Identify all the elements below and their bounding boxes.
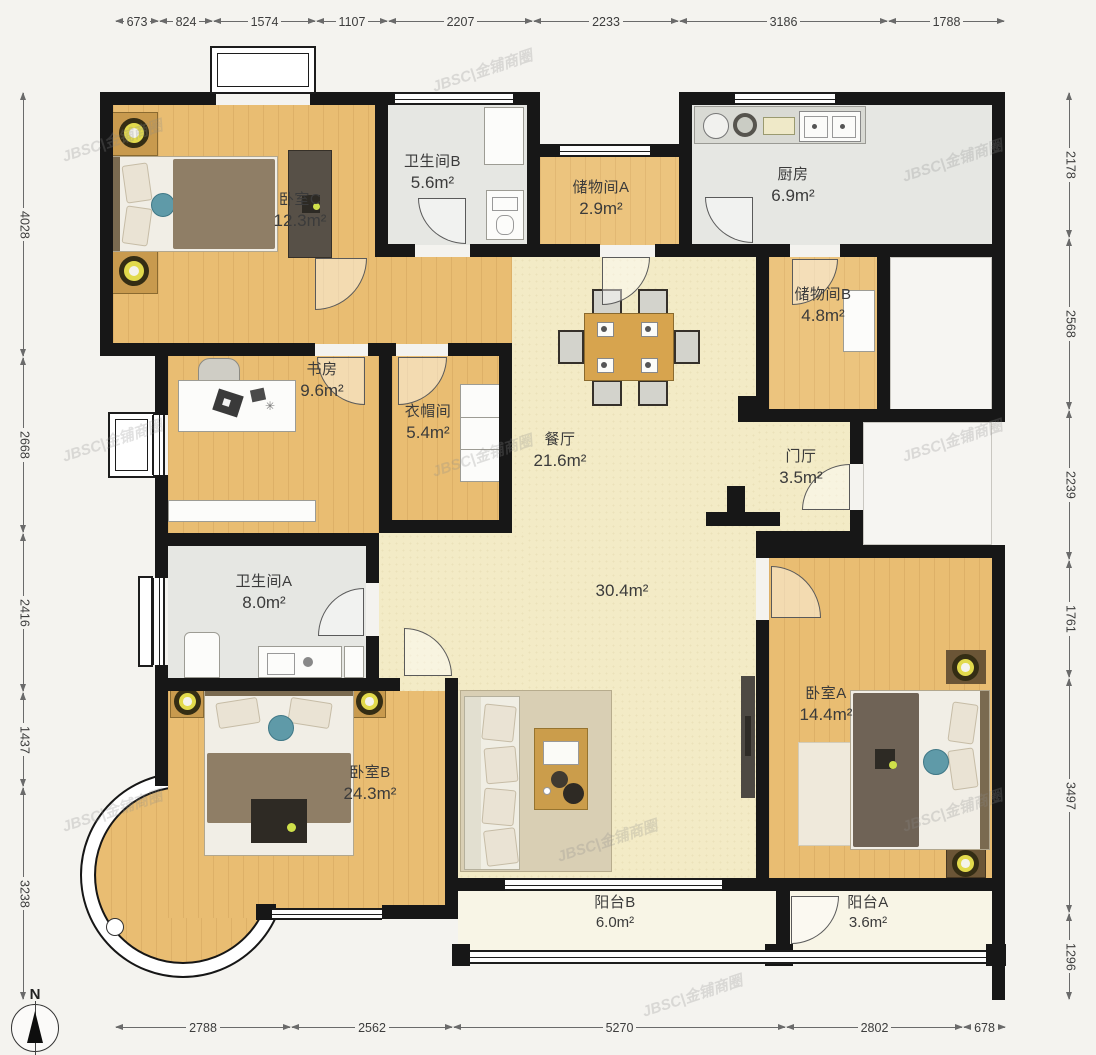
- dim-value: 2802: [858, 1022, 892, 1035]
- room-name: 衣帽间: [368, 402, 488, 422]
- wall: [992, 545, 1005, 1000]
- dim-right-segment: 2568: [1062, 238, 1078, 410]
- wall: [155, 678, 400, 691]
- lamp-icon: [119, 256, 149, 286]
- window: [152, 415, 165, 475]
- dim-value: 1296: [1064, 940, 1077, 974]
- lamp-icon: [119, 118, 149, 148]
- dim-right-segment: 2178: [1062, 92, 1078, 238]
- dim-right-segment: 2239: [1062, 410, 1078, 560]
- wall: [679, 92, 735, 105]
- dining-chair: [638, 289, 668, 315]
- room-area: 30.4m²: [560, 580, 684, 602]
- wall: [379, 520, 512, 533]
- room-name: 卫生间B: [370, 152, 495, 172]
- room-area: 24.3m²: [308, 783, 432, 805]
- room-label-balcony-a: 阳台A 3.6m²: [806, 893, 930, 932]
- dim-top-segment: 824: [159, 14, 213, 30]
- dim-left-segment: 2416: [16, 533, 32, 692]
- wall: [692, 244, 758, 257]
- floor-corridor: [379, 533, 527, 691]
- dim-value: 5270: [603, 1022, 637, 1035]
- wall: [756, 620, 769, 878]
- room-label-bath-a: 卫生间A 8.0m²: [202, 572, 326, 614]
- room-name: 阳台A: [806, 893, 930, 913]
- window: [560, 144, 650, 157]
- wall: [722, 878, 776, 891]
- dim-top-segment: 2207: [388, 14, 533, 30]
- dim-value: 1437: [18, 723, 31, 757]
- bay-window: [108, 412, 155, 478]
- bay-window: [138, 576, 153, 667]
- room-name: 阳台B: [553, 893, 677, 913]
- dim-value: 3497: [1064, 779, 1077, 813]
- room-name: 储物间A: [536, 178, 666, 198]
- coffee-table: [534, 728, 588, 810]
- dining-chair: [558, 330, 584, 364]
- dim-left-segment: 3238: [16, 787, 32, 1000]
- dim-value: 824: [173, 16, 200, 29]
- wall: [470, 244, 527, 257]
- room-label-bedroom-a: 卧室A 14.4m²: [764, 684, 888, 726]
- dim-left-segment: 1437: [16, 692, 32, 787]
- wall: [388, 244, 415, 257]
- wall: [366, 533, 379, 583]
- dim-bottom-segment: 2802: [786, 1020, 963, 1036]
- wall: [527, 144, 560, 157]
- floor-plan: ✳: [0, 0, 1096, 1055]
- room-area: 8.0m²: [202, 592, 326, 614]
- window: [735, 92, 835, 105]
- north-indicator: N: [10, 986, 60, 1052]
- wall: [452, 944, 470, 966]
- wall: [986, 944, 1006, 966]
- wall: [513, 92, 540, 105]
- dim-bottom-segment: 5270: [453, 1020, 786, 1036]
- dim-value: 678: [971, 1022, 998, 1035]
- dim-value: 2668: [18, 428, 31, 462]
- window: [152, 578, 165, 665]
- room-area: 5.4m²: [368, 422, 488, 444]
- kitchen-counter: [694, 106, 866, 144]
- room-area: 9.6m²: [262, 380, 382, 402]
- wall: [756, 409, 1005, 422]
- room-name: 门厅: [742, 447, 860, 467]
- tv-panel: [741, 676, 755, 798]
- room-label-balcony-b: 阳台B 6.0m²: [553, 893, 677, 932]
- wall: [835, 92, 1005, 105]
- window: [272, 908, 382, 920]
- north-arrow-icon: [11, 1004, 59, 1052]
- wall: [458, 878, 505, 891]
- dim-top-segment: 1788: [888, 14, 1005, 30]
- wall: [155, 343, 315, 356]
- dim-value: 2239: [1064, 468, 1077, 502]
- dining-chair: [592, 380, 622, 406]
- wall: [527, 244, 600, 257]
- dim-left-segment: 4028: [16, 92, 32, 357]
- wall: [756, 531, 863, 545]
- dining-chair: [674, 330, 700, 364]
- dim-value: 2788: [186, 1022, 220, 1035]
- lamp-icon: [356, 688, 383, 715]
- toilet: [344, 646, 364, 678]
- wall: [992, 92, 1005, 422]
- dim-top-segment: 2233: [533, 14, 679, 30]
- room-label-storage-a: 储物间A 2.9m²: [536, 178, 666, 220]
- wall: [155, 475, 168, 578]
- dim-value: 1761: [1064, 602, 1077, 636]
- room-name: 储物间B: [760, 285, 886, 305]
- room-label-storage-b: 储物间B 4.8m²: [760, 285, 886, 327]
- dim-right-segment: 1296: [1062, 913, 1078, 1000]
- dim-right-segment: 1761: [1062, 560, 1078, 678]
- bay-window: [210, 46, 316, 94]
- room-label-hall: 门厅 3.5m²: [742, 447, 860, 489]
- window: [395, 92, 513, 105]
- lamp-icon: [952, 850, 979, 877]
- dim-value: 1107: [336, 16, 369, 29]
- room-label-bedroom-c: 卧室C 12.3m²: [240, 190, 360, 232]
- dim-value: 2562: [355, 1022, 389, 1035]
- floor-corridor-bedc: [376, 257, 527, 344]
- dim-left-segment: 2668: [16, 357, 32, 533]
- wall: [155, 768, 168, 786]
- room-area: 6.9m²: [733, 185, 853, 207]
- wall: [758, 244, 790, 257]
- dim-top-segment: 3186: [679, 14, 888, 30]
- room-label-living: 30.4m²: [560, 580, 684, 602]
- dim-value: 1574: [248, 16, 282, 29]
- wall: [706, 512, 780, 526]
- dim-bottom-segment: 2562: [291, 1020, 453, 1036]
- room-label-bath-b: 卫生间B 5.6m²: [370, 152, 495, 194]
- turret-detail: [106, 918, 124, 936]
- wall: [679, 92, 692, 257]
- dim-top-segment: 1574: [213, 14, 316, 30]
- wall: [655, 244, 692, 257]
- floor-shaft: [890, 257, 992, 410]
- floor-entry-notch: [863, 422, 992, 545]
- room-name: 厨房: [733, 165, 853, 185]
- room-name: 卧室C: [240, 190, 360, 210]
- dim-top-segment: 1107: [316, 14, 388, 30]
- wall: [790, 878, 992, 891]
- dim-value: 3186: [767, 16, 801, 29]
- window: [505, 878, 722, 891]
- room-label-dining: 餐厅 21.6m²: [500, 430, 620, 472]
- lamp-icon: [174, 688, 201, 715]
- room-area: 2.9m²: [536, 198, 666, 220]
- washing-machine: [184, 632, 220, 678]
- dim-value: 4028: [18, 208, 31, 242]
- room-area: 14.4m²: [764, 704, 888, 726]
- room-area: 21.6m²: [500, 450, 620, 472]
- room-name: 卧室A: [764, 684, 888, 704]
- wall: [756, 257, 769, 409]
- dim-value: 1788: [930, 16, 964, 29]
- wall: [100, 92, 113, 356]
- dim-bottom-segment: 2788: [115, 1020, 291, 1036]
- watermark: JBSC|金铺商圈: [639, 969, 745, 1021]
- room-name: 卧室B: [308, 763, 432, 783]
- dim-value: 3238: [18, 877, 31, 911]
- wall: [877, 257, 890, 409]
- room-area: 3.5m²: [742, 467, 860, 489]
- dim-value: 673: [124, 16, 151, 29]
- room-label-kitchen: 厨房 6.9m²: [733, 165, 853, 207]
- window: [470, 950, 986, 964]
- room-label-study: 书房 9.6m²: [262, 360, 382, 402]
- dim-value: 2568: [1064, 307, 1077, 341]
- wall: [738, 396, 758, 422]
- wall: [727, 486, 745, 514]
- room-label-bedroom-b: 卧室B 24.3m²: [308, 763, 432, 805]
- wall: [155, 533, 379, 546]
- dining-table: [584, 313, 674, 381]
- wall: [840, 244, 1005, 257]
- dim-bottom-segment: 678: [963, 1020, 1006, 1036]
- bathroom-vanity: [258, 646, 342, 678]
- room-label-cloakroom: 衣帽间 5.4m²: [368, 402, 488, 444]
- room-area: 5.6m²: [370, 172, 495, 194]
- room-area: 6.0m²: [553, 913, 677, 933]
- room-area: 4.8m²: [760, 305, 886, 327]
- wall: [100, 92, 216, 105]
- room-area: 3.6m²: [806, 913, 930, 933]
- dim-value: 2416: [18, 596, 31, 630]
- wall: [445, 678, 458, 918]
- sofa: [464, 696, 520, 870]
- wall: [382, 905, 458, 919]
- dining-chair: [638, 380, 668, 406]
- room-name: 书房: [262, 360, 382, 380]
- dim-value: 2233: [589, 16, 623, 29]
- wall: [756, 545, 1005, 558]
- dim-top-segment: 673: [115, 14, 159, 30]
- room-area: 12.3m²: [240, 210, 360, 232]
- room-name: 餐厅: [500, 430, 620, 450]
- watermark: JBSC|金铺商圈: [429, 44, 535, 96]
- toilet: [486, 190, 524, 240]
- dim-value: 2207: [444, 16, 478, 29]
- dim-right-segment: 3497: [1062, 678, 1078, 913]
- lamp-icon: [952, 654, 979, 681]
- dim-value: 2178: [1064, 148, 1077, 182]
- room-name: 卫生间A: [202, 572, 326, 592]
- credenza: [168, 500, 316, 522]
